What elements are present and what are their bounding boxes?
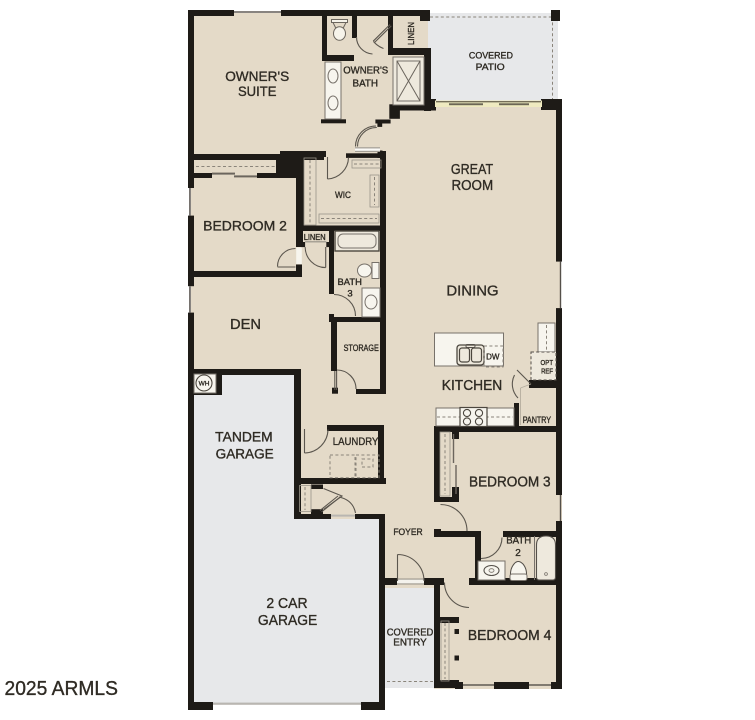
svg-text:LAUNDRY: LAUNDRY bbox=[333, 436, 379, 448]
svg-text:OWNER'S: OWNER'S bbox=[343, 66, 388, 77]
svg-text:2 CAR: 2 CAR bbox=[266, 595, 307, 612]
svg-text:COVERED: COVERED bbox=[469, 50, 513, 60]
svg-text:PANTRY: PANTRY bbox=[523, 415, 551, 425]
svg-text:BATH: BATH bbox=[506, 536, 531, 547]
svg-text:OWNER'S: OWNER'S bbox=[225, 68, 289, 84]
svg-text:BEDROOM 3: BEDROOM 3 bbox=[469, 475, 551, 491]
svg-text:2025 ARMLS: 2025 ARMLS bbox=[5, 678, 119, 700]
svg-text:2: 2 bbox=[515, 548, 521, 559]
svg-text:KITCHEN: KITCHEN bbox=[442, 377, 503, 394]
svg-text:BEDROOM 2: BEDROOM 2 bbox=[203, 218, 287, 234]
svg-text:3: 3 bbox=[347, 288, 352, 299]
svg-text:STORAGE: STORAGE bbox=[344, 343, 379, 353]
svg-text:BEDROOM 4: BEDROOM 4 bbox=[468, 628, 552, 644]
svg-text:BATH: BATH bbox=[338, 277, 362, 288]
svg-text:REF: REF bbox=[541, 367, 553, 376]
svg-text:PATIO: PATIO bbox=[476, 62, 505, 72]
svg-text:TANDEM: TANDEM bbox=[215, 430, 273, 445]
svg-text:GREAT: GREAT bbox=[451, 162, 493, 178]
svg-text:ENTRY: ENTRY bbox=[393, 637, 426, 649]
svg-text:ROOM: ROOM bbox=[451, 178, 493, 194]
svg-text:DW: DW bbox=[486, 352, 500, 361]
svg-text:GARAGE: GARAGE bbox=[216, 446, 274, 461]
svg-text:DEN: DEN bbox=[230, 316, 261, 333]
svg-text:DINING: DINING bbox=[446, 283, 498, 300]
svg-text:WH: WH bbox=[199, 381, 210, 388]
svg-text:GARAGE: GARAGE bbox=[258, 612, 317, 629]
svg-text:BATH: BATH bbox=[353, 78, 379, 89]
svg-text:FOYER: FOYER bbox=[393, 527, 422, 538]
svg-text:LINEN: LINEN bbox=[406, 22, 416, 45]
svg-text:LINEN: LINEN bbox=[304, 233, 326, 242]
svg-text:SUITE: SUITE bbox=[238, 83, 277, 99]
svg-text:WIC: WIC bbox=[335, 190, 351, 201]
